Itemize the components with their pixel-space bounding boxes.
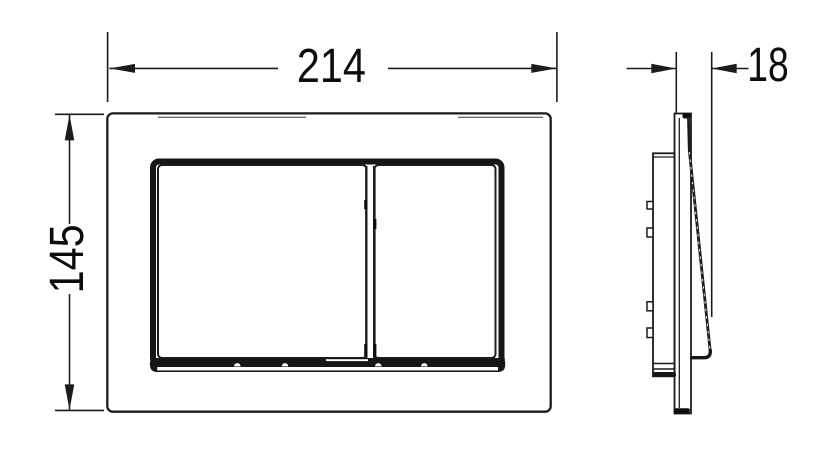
svg-text:145: 145 xyxy=(41,224,94,293)
svg-text:214: 214 xyxy=(297,40,366,93)
svg-text:18: 18 xyxy=(747,39,789,92)
